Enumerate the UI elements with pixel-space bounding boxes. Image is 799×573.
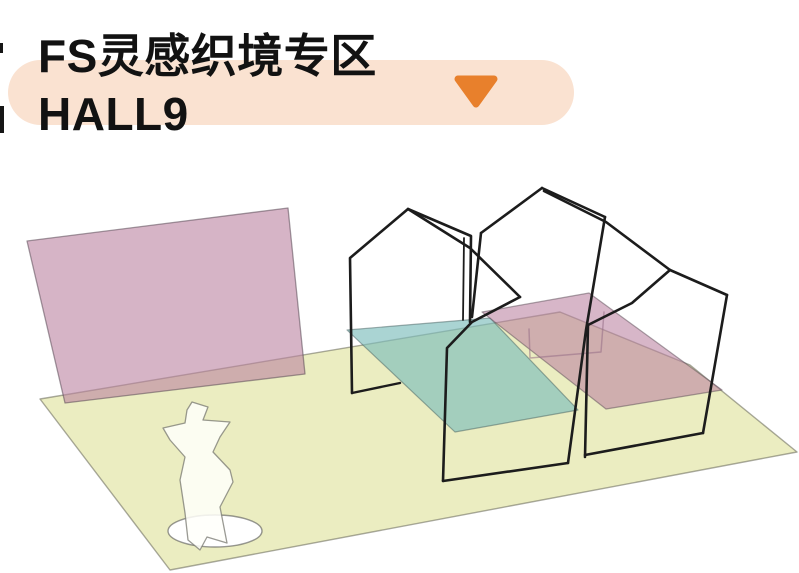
page-title: FS灵感织境专区 bbox=[38, 31, 377, 82]
house-left-edge-double bbox=[463, 238, 464, 320]
house-middle-left-edge bbox=[472, 233, 481, 317]
down-triangle-icon bbox=[452, 73, 500, 111]
down-triangle-shape bbox=[458, 79, 494, 104]
pink-wall-panel bbox=[27, 208, 305, 403]
house-right-ridge bbox=[670, 270, 727, 295]
hall-number: HALL9 bbox=[38, 89, 189, 140]
header: FS灵感织境专区 HALL9 bbox=[0, 0, 799, 160]
house-middle-ridge bbox=[544, 191, 670, 270]
poster-page: FS灵感织境专区 HALL9 bbox=[0, 0, 799, 573]
house-middle-right-slope bbox=[542, 188, 605, 217]
house-middle-left-slope bbox=[481, 188, 542, 233]
